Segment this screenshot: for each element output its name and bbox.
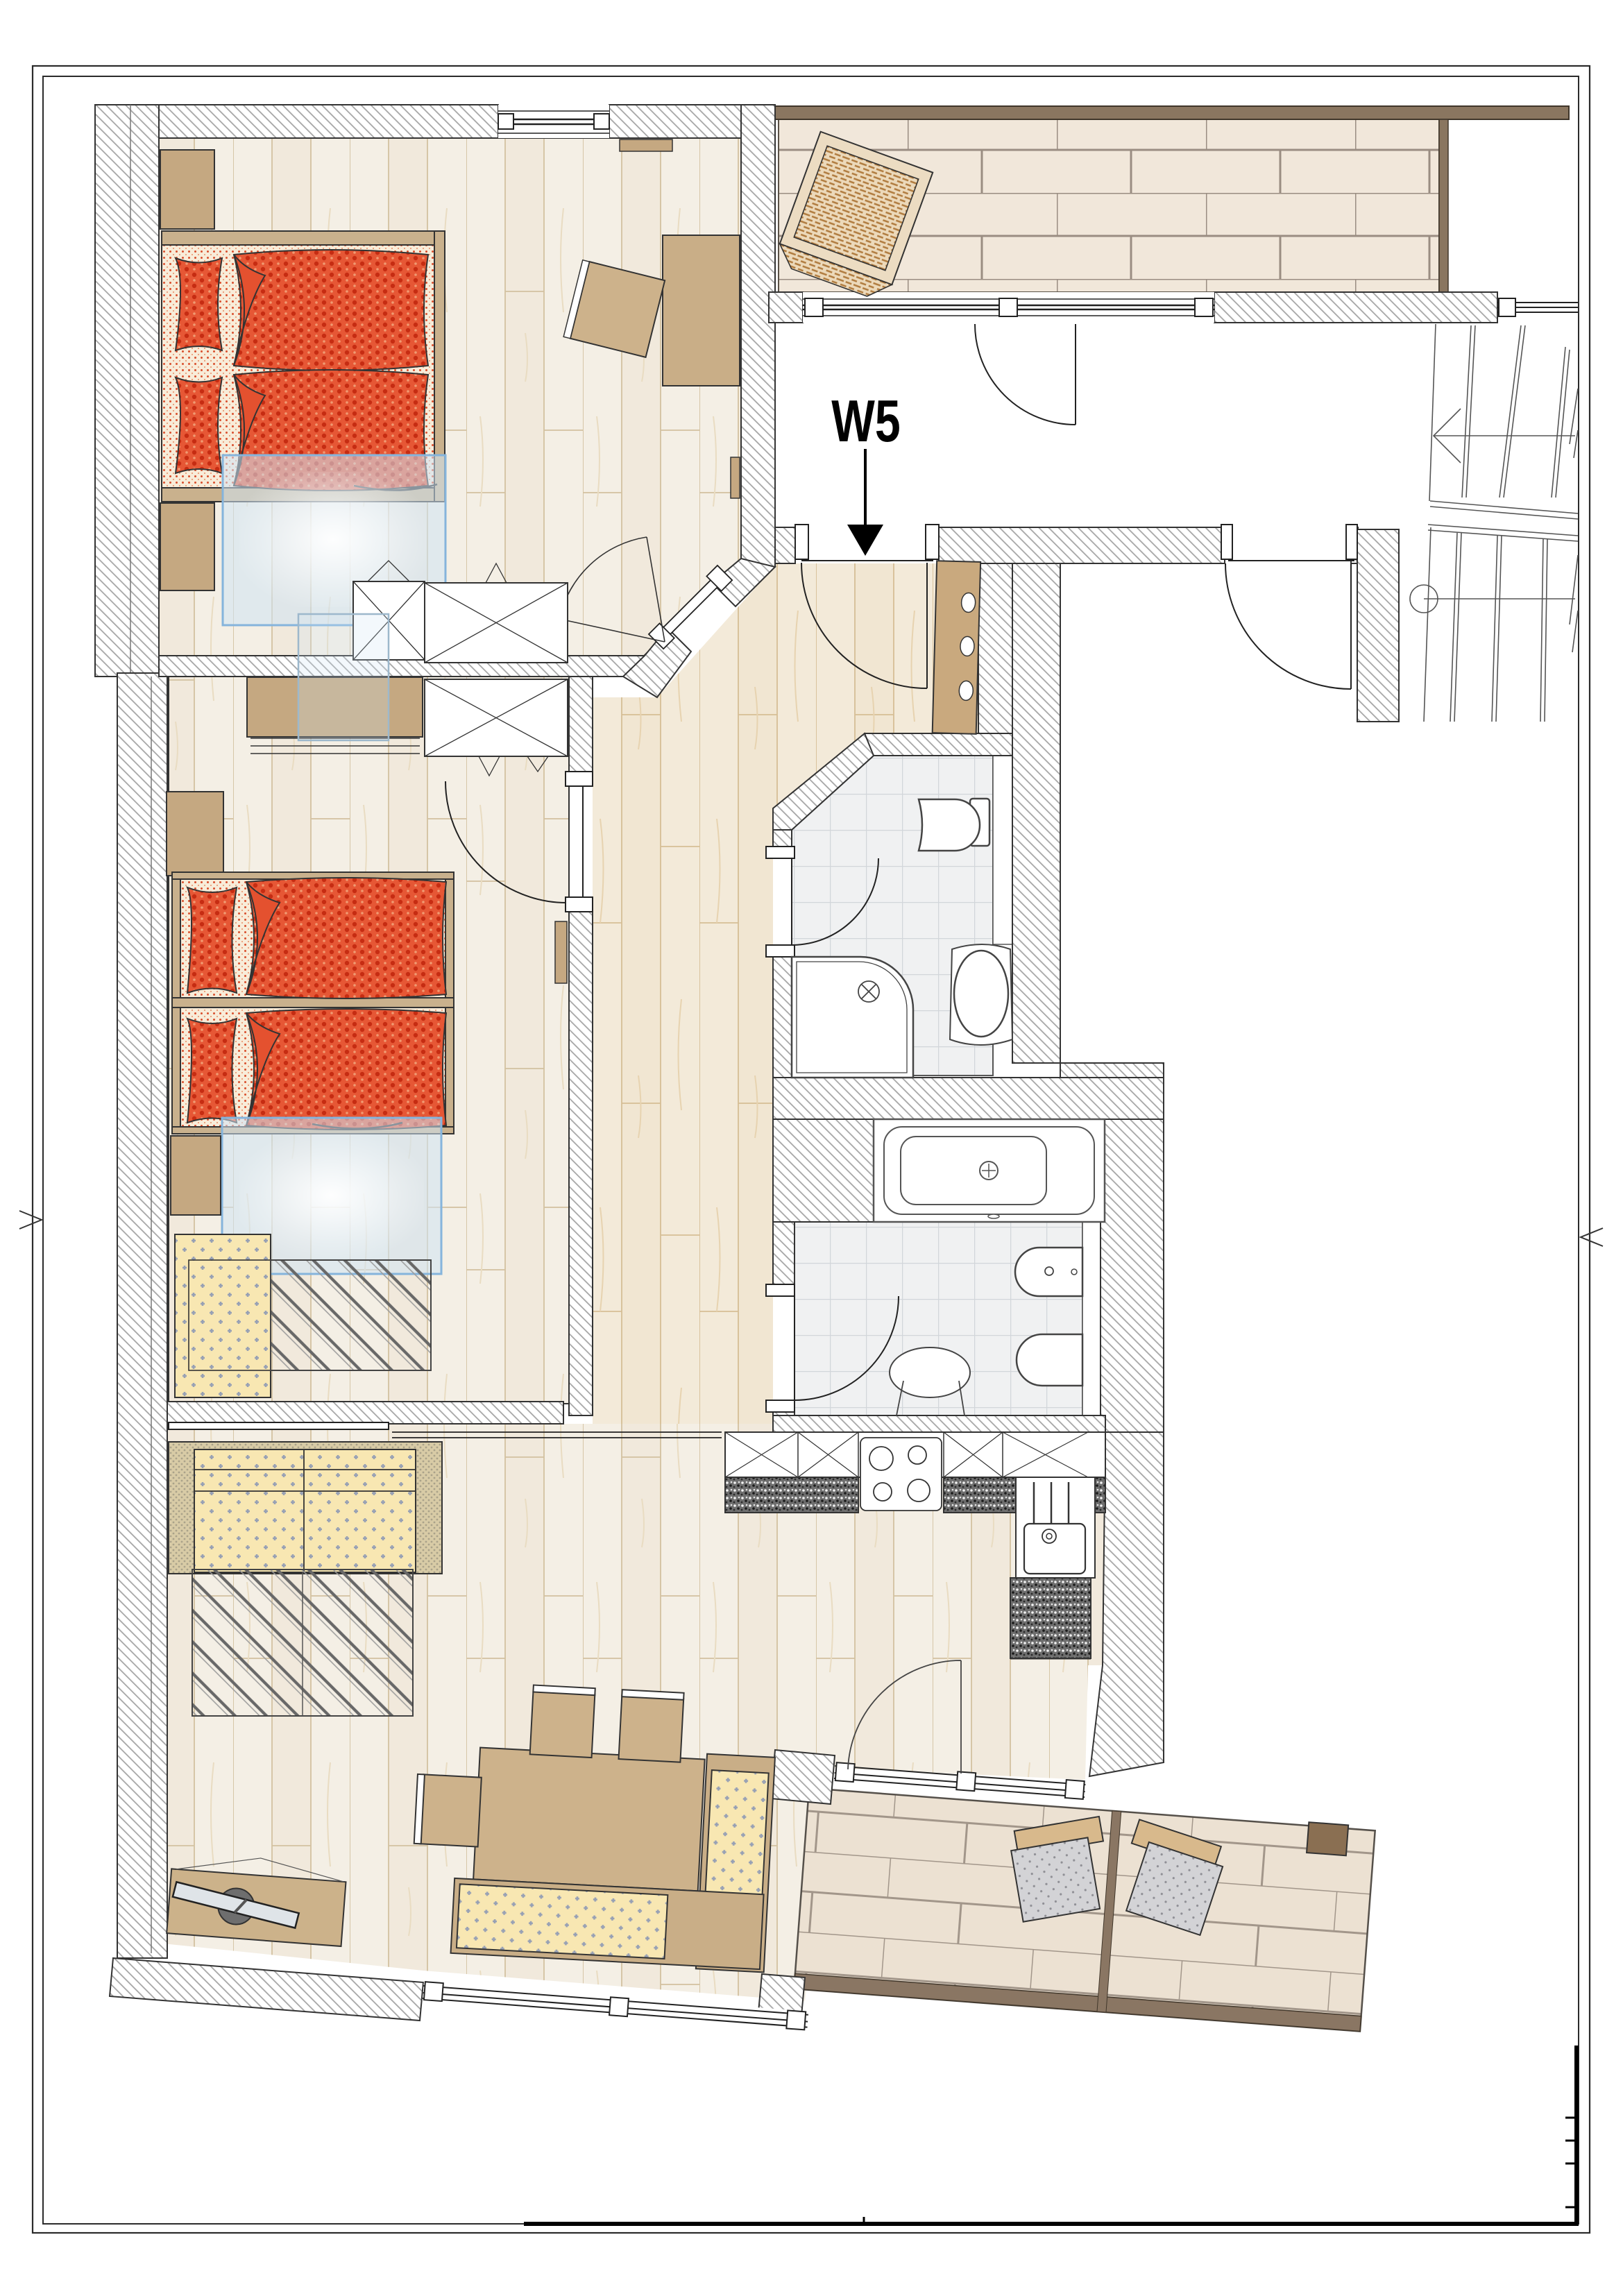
svg-text:W5: W5 (831, 389, 900, 454)
